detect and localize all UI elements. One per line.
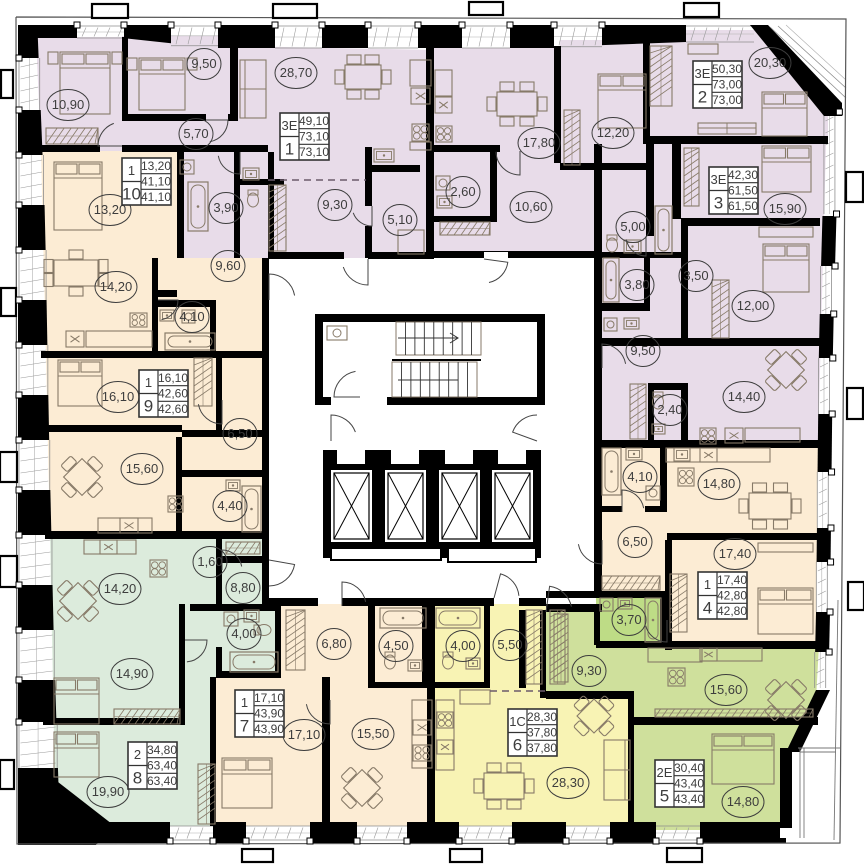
svg-text:10,60: 10,60 <box>515 199 548 214</box>
svg-text:61,50: 61,50 <box>728 184 758 198</box>
svg-text:5: 5 <box>660 786 669 805</box>
svg-text:14,40: 14,40 <box>728 389 761 404</box>
svg-text:6,80: 6,80 <box>321 636 346 651</box>
svg-text:4,50: 4,50 <box>383 638 408 653</box>
svg-text:15,90: 15,90 <box>769 201 802 216</box>
svg-text:16,10: 16,10 <box>158 371 188 385</box>
svg-text:42,30: 42,30 <box>728 168 758 182</box>
svg-text:2: 2 <box>698 87 707 106</box>
svg-text:15,50: 15,50 <box>357 726 390 741</box>
svg-text:17,40: 17,40 <box>719 546 752 561</box>
svg-text:1: 1 <box>285 139 294 158</box>
svg-text:4,40: 4,40 <box>217 498 242 513</box>
svg-text:15,60: 15,60 <box>710 682 743 697</box>
svg-text:4,10: 4,10 <box>179 309 204 324</box>
svg-text:1: 1 <box>704 577 711 592</box>
svg-text:17,80: 17,80 <box>523 135 556 150</box>
svg-text:3Е: 3Е <box>282 118 298 133</box>
svg-text:2: 2 <box>134 747 141 762</box>
svg-text:12,00: 12,00 <box>737 298 770 313</box>
svg-text:37,80: 37,80 <box>527 726 557 740</box>
svg-text:43,90: 43,90 <box>254 707 284 721</box>
svg-text:43,90: 43,90 <box>254 722 284 736</box>
svg-text:7: 7 <box>240 716 249 735</box>
svg-text:4,10: 4,10 <box>627 469 652 484</box>
svg-text:8: 8 <box>133 768 142 787</box>
svg-text:9,30: 9,30 <box>576 663 601 678</box>
svg-text:17,10: 17,10 <box>254 691 284 705</box>
svg-text:3Е: 3Е <box>711 172 727 187</box>
svg-text:73,10: 73,10 <box>299 145 329 159</box>
svg-text:14,20: 14,20 <box>104 581 137 596</box>
svg-text:9,50: 9,50 <box>630 343 655 358</box>
svg-text:2Е: 2Е <box>657 765 673 780</box>
svg-text:10: 10 <box>122 184 141 203</box>
svg-text:1С: 1С <box>509 714 526 729</box>
svg-text:16,10: 16,10 <box>102 389 135 404</box>
svg-text:14,80: 14,80 <box>703 476 736 491</box>
svg-text:13,20: 13,20 <box>141 159 171 173</box>
svg-text:73,00: 73,00 <box>712 78 742 92</box>
svg-text:63,40: 63,40 <box>147 774 177 788</box>
svg-text:9,60: 9,60 <box>215 258 240 273</box>
svg-text:19,90: 19,90 <box>92 784 125 799</box>
svg-text:41,10: 41,10 <box>141 190 171 204</box>
svg-text:34,80: 34,80 <box>147 743 177 757</box>
svg-text:41,10: 41,10 <box>141 175 171 189</box>
svg-text:73,10: 73,10 <box>299 130 329 144</box>
svg-text:42,60: 42,60 <box>158 402 188 416</box>
svg-text:30,40: 30,40 <box>674 761 704 775</box>
svg-text:6,50: 6,50 <box>227 426 252 441</box>
svg-text:15,60: 15,60 <box>126 461 159 476</box>
svg-text:10,90: 10,90 <box>52 97 85 112</box>
svg-text:9,50: 9,50 <box>191 56 216 71</box>
svg-text:5,10: 5,10 <box>387 212 412 227</box>
svg-text:42,60: 42,60 <box>158 387 188 401</box>
svg-text:6,50: 6,50 <box>622 534 647 549</box>
svg-text:43,40: 43,40 <box>674 792 704 806</box>
svg-text:1: 1 <box>241 695 248 710</box>
svg-text:5,70: 5,70 <box>183 126 208 141</box>
svg-text:50,30: 50,30 <box>712 62 742 76</box>
svg-text:61,50: 61,50 <box>728 199 758 213</box>
svg-text:8,80: 8,80 <box>230 580 255 595</box>
svg-text:1: 1 <box>128 163 135 178</box>
svg-text:5,50: 5,50 <box>497 637 522 652</box>
svg-text:4,00: 4,00 <box>231 626 256 641</box>
svg-text:4: 4 <box>703 598 712 617</box>
svg-text:17,40: 17,40 <box>717 573 747 587</box>
svg-text:9,30: 9,30 <box>322 197 347 212</box>
svg-text:14,20: 14,20 <box>100 279 133 294</box>
svg-text:4,00: 4,00 <box>450 638 475 653</box>
svg-text:3,90: 3,90 <box>213 200 238 215</box>
svg-text:3: 3 <box>714 193 723 212</box>
svg-text:42,80: 42,80 <box>717 589 747 603</box>
svg-text:20,30: 20,30 <box>754 55 787 70</box>
svg-text:37,80: 37,80 <box>527 741 557 755</box>
svg-text:63,40: 63,40 <box>147 759 177 773</box>
svg-text:28,30: 28,30 <box>552 775 585 790</box>
svg-text:49,10: 49,10 <box>299 114 329 128</box>
svg-text:2,40: 2,40 <box>657 402 682 417</box>
svg-text:3,80: 3,80 <box>624 277 649 292</box>
svg-text:73,00: 73,00 <box>712 93 742 107</box>
svg-text:3,50: 3,50 <box>683 268 708 283</box>
svg-text:14,90: 14,90 <box>116 666 149 681</box>
svg-text:17,10: 17,10 <box>288 727 321 742</box>
svg-text:1,60: 1,60 <box>197 554 222 569</box>
svg-text:12,20: 12,20 <box>597 125 630 140</box>
svg-text:3,70: 3,70 <box>616 612 641 627</box>
svg-text:5,00: 5,00 <box>620 219 645 234</box>
svg-text:42,80: 42,80 <box>717 604 747 618</box>
svg-text:43,40: 43,40 <box>674 777 704 791</box>
svg-text:9: 9 <box>144 396 153 415</box>
svg-text:14,80: 14,80 <box>727 794 760 809</box>
svg-text:1: 1 <box>145 375 152 390</box>
svg-text:6: 6 <box>513 735 522 754</box>
svg-text:2,60: 2,60 <box>450 184 475 199</box>
svg-text:28,30: 28,30 <box>527 710 557 724</box>
svg-text:3Е: 3Е <box>695 66 711 81</box>
svg-text:28,70: 28,70 <box>280 65 313 80</box>
